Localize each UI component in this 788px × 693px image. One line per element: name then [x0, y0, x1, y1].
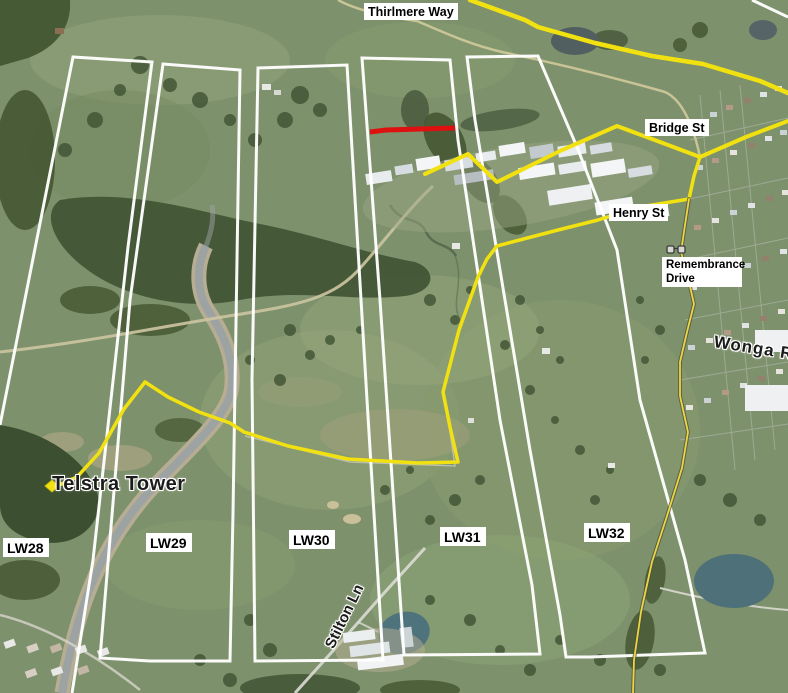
- panel-label-lw32: LW32: [584, 523, 630, 542]
- street-label-thirlmere-way: Thirlmere Way: [364, 3, 458, 20]
- aerial-map: Thirlmere Way Bridge St Henry St Remembr…: [0, 0, 788, 693]
- longwall-panel-outline-lw29: [100, 64, 240, 661]
- longwall-panel-outline-boundary-segment: [752, 0, 788, 17]
- panel-label-lw28: LW28: [3, 538, 49, 557]
- longwall-panel-outline-lw28: [0, 57, 152, 693]
- longwall-panel-outline-lw30: [252, 65, 383, 661]
- panel-label-lw29: LW29: [146, 533, 192, 552]
- red-highlight-segment: [370, 128, 455, 132]
- photo-icon: [667, 246, 685, 253]
- street-label-henry-st: Henry St: [609, 204, 668, 221]
- northern-route: [470, 0, 788, 93]
- panel-label-lw30: LW30: [289, 530, 335, 549]
- map-overlays: [0, 0, 788, 693]
- street-label-remembrance-drive: Remembrance Drive: [662, 257, 742, 287]
- place-label-telstra-tower: Telstra Tower: [52, 473, 186, 496]
- street-label-bridge-st: Bridge St: [645, 119, 709, 136]
- henry-st-telstra-route: [57, 157, 700, 486]
- panel-label-lw31: LW31: [440, 527, 486, 546]
